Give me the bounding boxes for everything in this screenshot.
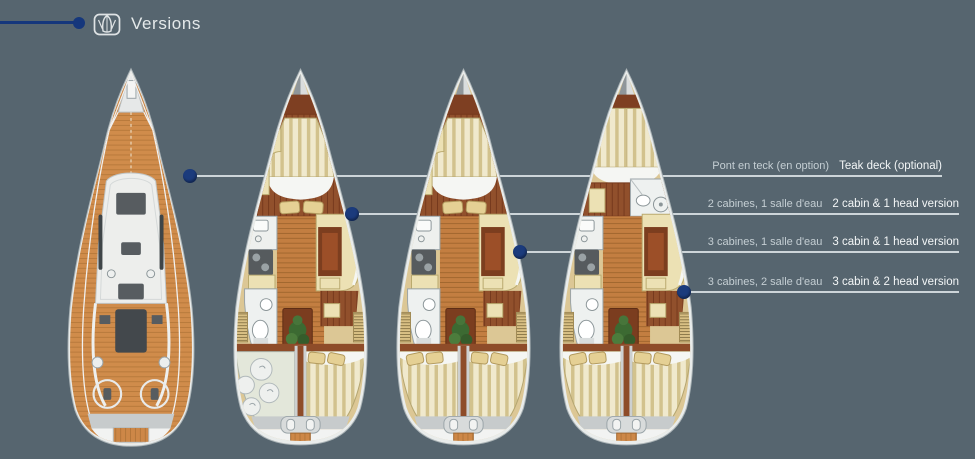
annotation-3cabin-1head: 3 cabines, 1 salle d'eau 3 cabin & 1 hea…: [708, 236, 959, 248]
leader-line-3cabin-2head: [684, 291, 959, 293]
annotation-3cabin-1head-en: 3 cabin & 1 head version: [832, 236, 959, 248]
annotation-2cabin-1head-fr: 2 cabines, 1 salle d'eau: [708, 198, 823, 210]
brochure-page: Versions: [0, 0, 975, 459]
annotation-2cabin-1head-en: 2 cabin & 1 head version: [832, 198, 959, 210]
annotation-teak-deck-en: Teak deck (optional): [839, 160, 942, 172]
annotation-teak-deck-fr: Pont en teck (en option): [712, 160, 829, 172]
annotation-3cabin-2head: 3 cabines, 2 salle d'eau 3 cabin & 2 hea…: [708, 276, 959, 288]
boat-teak-deck-plan: [62, 66, 200, 447]
header-accent-line: [0, 21, 74, 24]
marker-dot-teak-deck: [183, 169, 197, 183]
marker-dot-3cabin-1head: [513, 245, 527, 259]
annotation-3cabin-2head-fr: 3 cabines, 2 salle d'eau: [708, 276, 823, 288]
marker-dot-3cabin-2head: [677, 285, 691, 299]
boat-2-cabin-1-head-plan: [222, 64, 379, 448]
header-accent-dot: [73, 17, 85, 29]
annotation-2cabin-1head: 2 cabines, 1 salle d'eau 2 cabin & 1 hea…: [708, 198, 959, 210]
boat-3-cabin-2-head-plan: [548, 64, 705, 448]
boat-versions-icon: [92, 11, 122, 38]
annotation-3cabin-2head-en: 3 cabin & 2 head version: [832, 276, 959, 288]
annotation-3cabin-1head-fr: 3 cabines, 1 salle d'eau: [708, 236, 823, 248]
marker-dot-2cabin: [345, 207, 359, 221]
annotation-teak-deck: Pont en teck (en option) Teak deck (opti…: [712, 160, 942, 172]
page-title: Versions: [131, 14, 201, 34]
